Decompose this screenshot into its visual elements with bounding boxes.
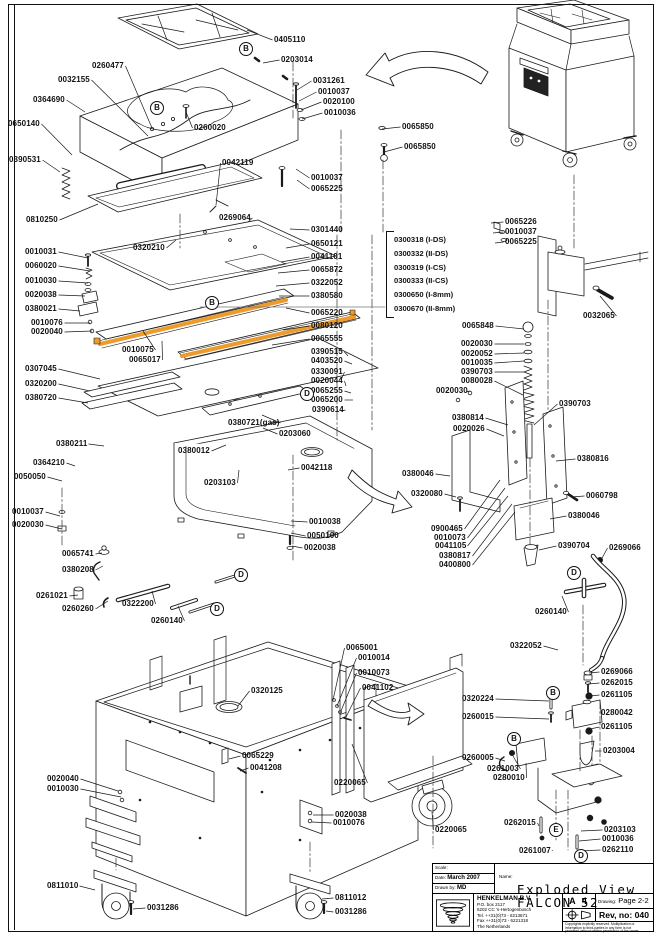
drawn-by-field: Drawn by: MD (433, 884, 494, 893)
part-label: 0220065 (334, 779, 366, 787)
part-label: 0322200 (122, 600, 154, 608)
part-label: 0261105 (601, 723, 632, 731)
title-block: Scale: Date: March 2007 Drawn by: MD Nam… (432, 863, 654, 932)
part-label: 0020044 (311, 377, 343, 385)
part-label: 0065850 (404, 143, 436, 151)
part-label: 0220065 (435, 826, 467, 834)
part-label: 0010075 (122, 346, 154, 354)
part-label: 0380046 (568, 512, 600, 520)
part-label: 0050050 (14, 473, 46, 481)
part-label: 0260015 (462, 713, 494, 721)
part-label: 0020052 (461, 350, 493, 358)
part-label: 0020100 (323, 98, 355, 106)
part-label: 0203103 (604, 826, 636, 834)
callout-b: B (205, 296, 219, 310)
name-label: Name: (499, 874, 513, 879)
part-label: 0403520 (311, 357, 343, 365)
part-label: 0020026 (453, 425, 485, 433)
part-label: 0010076 (31, 319, 63, 327)
part-label: 0065255 (311, 387, 343, 395)
part-label: 0260140 (535, 608, 567, 616)
part-label: 0380012 (178, 447, 210, 455)
parts-list-item: 0300650 (I-8mm) (394, 288, 516, 302)
part-label: 0065872 (311, 266, 343, 274)
callout-b: B (150, 101, 164, 115)
callout-d: D (210, 602, 224, 616)
part-label: 0020030 (12, 521, 44, 529)
part-label: 0811010 (47, 882, 78, 890)
part-label: 0260477 (92, 62, 124, 70)
part-label: 0010031 (25, 248, 57, 256)
part-label: 0307045 (25, 365, 57, 373)
part-label: 0065200 (311, 396, 343, 404)
part-label: 0380021 (25, 305, 57, 313)
callout-b: B (546, 686, 560, 700)
part-label: 0065220 (311, 309, 343, 317)
part-label: 0010037 (311, 174, 343, 182)
part-label: 0031286 (335, 908, 367, 916)
part-label: 0380814 (452, 414, 484, 422)
part-label: 0322052 (510, 642, 542, 650)
part-label: 0041105 (435, 542, 466, 550)
part-label: 0261021 (36, 592, 68, 600)
part-label: 0065001 (346, 644, 378, 652)
part-label: 0060020 (25, 262, 57, 270)
part-label: 0261007 (519, 847, 551, 855)
company-country: The Netherlands (477, 924, 562, 929)
part-label: 0020040 (31, 328, 63, 336)
part-label: 0065741 (62, 550, 94, 558)
callout-d: D (567, 566, 581, 580)
part-label: 0060798 (586, 492, 618, 500)
part-label: 0330091 (311, 368, 343, 376)
parts-list-item: 0300333 (II-CS) (394, 274, 516, 288)
part-label: 0010014 (358, 654, 390, 662)
part-label: 0320200 (25, 380, 57, 388)
callout-d: D (300, 387, 314, 401)
callout-b: B (507, 732, 521, 746)
sheet-margin-line (14, 4, 15, 930)
part-label: 0280042 (601, 709, 633, 717)
part-label: 0390614 (312, 406, 344, 414)
part-label: 0203004 (603, 747, 635, 755)
parts-list-item: 0300670 (II-8mm) (394, 302, 516, 316)
parts-list-item: 0300319 (I-CS) (394, 261, 516, 275)
part-label: 0020030 (436, 387, 468, 395)
part-label: 0380211 (56, 440, 87, 448)
part-label: 0031261 (313, 77, 345, 85)
henkelman-logo (433, 894, 474, 932)
part-label: 0203103 (204, 479, 236, 487)
part-label: 0900465 (431, 525, 463, 533)
part-label: 0032065 (583, 312, 615, 320)
part-label: 0390515 (311, 348, 343, 356)
part-label: 0260140 (151, 617, 183, 625)
date-field: Date: March 2007 (433, 874, 494, 884)
part-label: 0364690 (33, 96, 65, 104)
part-label: 0080120 (311, 322, 343, 330)
drawing-sheet: 0405110020301402604770032155036469006501… (0, 0, 658, 934)
part-label: 0269064 (219, 214, 251, 222)
part-label: 0380720 (25, 394, 57, 402)
scale-field: Scale: (433, 864, 494, 874)
part-label: 0020038 (25, 291, 57, 299)
part-label: 0650121 (311, 240, 343, 248)
part-label: 0269066 (601, 668, 633, 676)
parts-list-item: 0300318 (I-DS) (394, 233, 516, 247)
part-label: 0010038 (309, 518, 341, 526)
drawing-name-cell: Name: Exploded View FALCON 52 (495, 864, 653, 893)
part-label: 0010076 (333, 819, 365, 827)
part-label: 0320224 (462, 695, 494, 703)
part-label: 0380208 (62, 566, 94, 574)
part-label: 0380721(gas) (228, 419, 279, 427)
part-label: 0080028 (461, 377, 493, 385)
part-label: 0065848 (462, 322, 494, 330)
copyright-fine-print: Copyrights explicitly reserved. Multipli… (563, 922, 653, 934)
part-label: 0380046 (402, 470, 434, 478)
part-label: 0405110 (274, 36, 305, 44)
part-label: 0041208 (250, 764, 282, 772)
part-label: 0320210 (133, 244, 165, 252)
part-label: 0020040 (47, 775, 79, 783)
part-label: 0042119 (222, 159, 253, 167)
part-label: 0065850 (402, 123, 434, 131)
callout-d: D (574, 849, 588, 863)
part-label: 0261105 (601, 691, 632, 699)
part-label: 0320080 (411, 490, 443, 498)
part-label: 0380580 (311, 292, 343, 300)
part-label: 0032155 (58, 76, 90, 84)
part-label: 0065017 (129, 356, 161, 364)
part-label: 0010036 (324, 109, 356, 117)
part-label: 0364210 (33, 459, 65, 467)
part-label: 0380817 (439, 552, 471, 560)
part-label: 0262015 (504, 819, 536, 827)
part-label: 0203060 (279, 430, 311, 438)
part-label: 0042118 (301, 464, 332, 472)
part-label: 0811012 (335, 894, 366, 902)
part-label: 0065225 (311, 185, 343, 193)
seal-bar-parts-list: 0300318 (I-DS)0300332 (II-DS)0300319 (I-… (386, 231, 516, 318)
part-label: 0810250 (26, 216, 58, 224)
part-label: 0269066 (609, 544, 641, 552)
part-label: 0020030 (461, 340, 493, 348)
part-label: 0065555 (311, 335, 343, 343)
part-label: 0010037 (318, 88, 350, 96)
part-label: 0260020 (194, 124, 226, 132)
part-label: 0010030 (25, 277, 57, 285)
part-label: 0260260 (62, 605, 94, 613)
part-label: 0400800 (439, 561, 471, 569)
part-label: 0280010 (493, 774, 525, 782)
part-label: 0301440 (311, 226, 343, 234)
part-label: 0390703 (559, 400, 591, 408)
part-label: 0390704 (558, 542, 590, 550)
part-label: 0041101 (311, 253, 342, 261)
projection-symbol-icon (563, 909, 596, 921)
part-label: 0010035 (461, 359, 493, 367)
part-label: 0010037 (12, 508, 44, 516)
parts-list-item: 0300332 (II-DS) (394, 247, 516, 261)
part-label: 0020038 (304, 544, 336, 552)
part-label: 0261003 (487, 765, 519, 773)
part-label: 0650140 (8, 120, 40, 128)
part-label: 0203014 (281, 56, 313, 64)
part-label: 0010073 (358, 669, 390, 677)
part-label: 0010036 (602, 835, 634, 843)
part-label: 0380816 (577, 455, 609, 463)
drawing-title-line2: FALCON 52 (517, 896, 653, 909)
part-label: 0041102 (362, 684, 393, 692)
part-label: 0320125 (251, 687, 283, 695)
part-label: 0010030 (47, 785, 79, 793)
part-label: 0262110 (602, 846, 633, 854)
part-label: 0065229 (242, 752, 274, 760)
part-label: 0260005 (462, 754, 494, 762)
part-label: 0031286 (147, 904, 179, 912)
part-label: 0322052 (311, 279, 343, 287)
part-labels-layer: 0405110020301402604770032155036469006501… (0, 0, 658, 934)
title-block-meta: Scale: Date: March 2007 Drawn by: MD (433, 864, 495, 893)
part-label: 0065226 (505, 218, 537, 226)
callout-e: E (549, 823, 563, 837)
revision-number: Rev, no: 040 (596, 909, 653, 921)
callout-d: D (234, 568, 248, 582)
part-label: 0050100 (307, 532, 339, 540)
part-label: 0390703 (461, 368, 493, 376)
part-label: 0262015 (601, 679, 633, 687)
callout-b: B (239, 42, 253, 56)
